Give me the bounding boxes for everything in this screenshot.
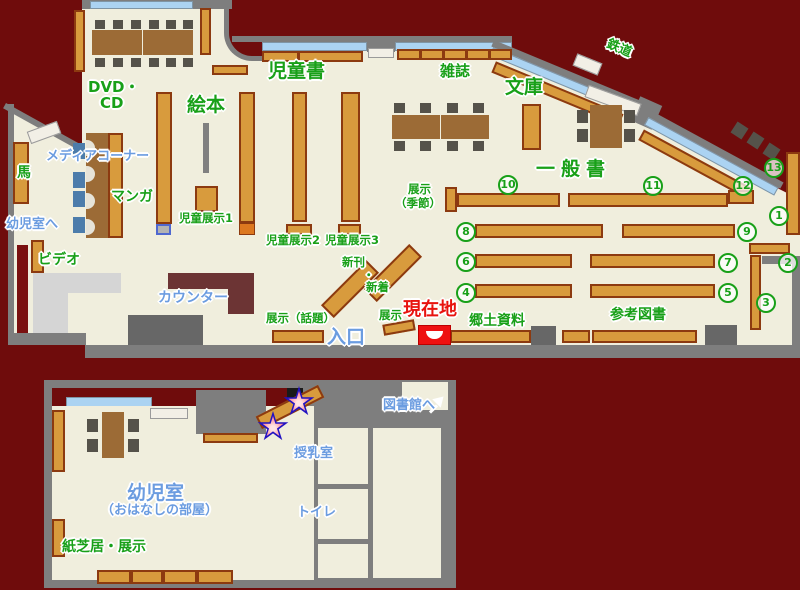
shelf-number-2: 2 bbox=[778, 253, 798, 273]
chair bbox=[394, 141, 405, 151]
label-display-seasonal2: （季節） bbox=[395, 197, 441, 209]
chair bbox=[747, 132, 765, 150]
label-railway: 鉄道 bbox=[604, 37, 633, 60]
chair bbox=[624, 110, 635, 123]
shelf bbox=[590, 284, 715, 298]
shelf-number-4: 4 bbox=[456, 283, 476, 303]
shelf bbox=[749, 243, 790, 254]
wall-block bbox=[705, 325, 737, 345]
shelf bbox=[786, 152, 800, 235]
label-picture-books: 絵本 bbox=[187, 96, 225, 116]
label-reference-books: 参考図書 bbox=[610, 308, 666, 323]
chair bbox=[128, 419, 139, 432]
chair bbox=[73, 217, 85, 233]
label-nursing-room: 授乳室 bbox=[294, 447, 333, 461]
display-topical-shelf bbox=[272, 330, 324, 343]
chair bbox=[113, 58, 123, 67]
shelf bbox=[74, 10, 85, 72]
label-new-arrivals2: 新着 bbox=[366, 281, 389, 293]
label-counter: カウンター bbox=[158, 291, 228, 306]
label-to-library: 図書館へ bbox=[383, 399, 435, 413]
chair bbox=[420, 141, 431, 151]
annex-wall-block bbox=[196, 390, 266, 434]
label-horse: 馬 bbox=[17, 166, 31, 181]
shelf bbox=[489, 49, 512, 60]
chair bbox=[473, 103, 484, 113]
reading-table bbox=[590, 105, 622, 148]
label-toilet: トイレ bbox=[297, 506, 336, 520]
shelf bbox=[443, 49, 467, 60]
wall-bottom bbox=[85, 345, 800, 358]
shelf bbox=[163, 570, 197, 584]
toilet-floor2 bbox=[318, 544, 368, 578]
window-topleft bbox=[90, 1, 193, 9]
label-child-display3: 児童展示3 bbox=[325, 234, 379, 246]
display-case bbox=[368, 48, 394, 58]
label-infant-room-sub: （おはなしの部屋） bbox=[101, 504, 218, 518]
shelf-number-8: 8 bbox=[456, 222, 476, 242]
wall-bottom-left bbox=[10, 333, 86, 345]
shelf bbox=[562, 330, 590, 343]
reading-table bbox=[92, 30, 142, 55]
shelf-number-9: 9 bbox=[737, 222, 757, 242]
work-counter bbox=[33, 293, 68, 333]
chair bbox=[128, 439, 139, 452]
chair bbox=[577, 110, 588, 123]
shelf bbox=[197, 570, 233, 584]
shelf bbox=[131, 570, 163, 584]
shelf-end-unit bbox=[239, 223, 255, 235]
chair bbox=[73, 191, 85, 207]
shelf bbox=[592, 330, 697, 343]
shelf bbox=[522, 104, 541, 150]
chair bbox=[87, 419, 98, 432]
label-new-arrivals1: 新刊 bbox=[342, 256, 365, 268]
chair bbox=[183, 20, 193, 29]
shelf bbox=[156, 92, 172, 224]
label-to-infant-room: 幼児室へ bbox=[6, 218, 58, 232]
shelf bbox=[475, 254, 572, 268]
chair bbox=[73, 172, 85, 188]
chair bbox=[731, 122, 749, 140]
shelf bbox=[341, 92, 360, 222]
reading-table bbox=[102, 412, 124, 458]
chair bbox=[149, 58, 159, 67]
wall-block bbox=[531, 326, 556, 345]
chair bbox=[149, 20, 159, 29]
label-kamishibai: 紙芝居・展示 bbox=[62, 540, 146, 555]
child-display1-table bbox=[195, 186, 218, 212]
shelf bbox=[203, 433, 258, 443]
chair bbox=[131, 20, 141, 29]
display-case bbox=[573, 53, 603, 75]
shelf bbox=[239, 92, 255, 223]
chair bbox=[577, 129, 588, 142]
chair bbox=[95, 58, 105, 67]
chair bbox=[447, 141, 458, 151]
shelf bbox=[622, 224, 735, 238]
chair bbox=[420, 103, 431, 113]
shelf-number-12: 12 bbox=[733, 176, 753, 196]
shelf-number-10: 10 bbox=[498, 175, 518, 195]
shelf bbox=[397, 49, 421, 60]
shelf-number-7: 7 bbox=[718, 253, 738, 273]
chair bbox=[131, 58, 141, 67]
display-case bbox=[150, 408, 188, 419]
current-location-marker bbox=[418, 325, 451, 345]
chair bbox=[113, 20, 123, 29]
shelf bbox=[590, 254, 715, 268]
shelf bbox=[450, 330, 531, 343]
shelf-number-5: 5 bbox=[718, 283, 738, 303]
label-display-small: 展示 bbox=[379, 309, 402, 321]
chair bbox=[166, 58, 176, 67]
shelf-number-13: 13 bbox=[764, 158, 784, 178]
shelf bbox=[292, 92, 307, 222]
label-paperbacks: 文庫 bbox=[505, 78, 543, 98]
shelf bbox=[475, 224, 603, 238]
chair bbox=[95, 20, 105, 29]
reading-table bbox=[143, 30, 193, 55]
label-video: ビデオ bbox=[38, 253, 80, 268]
picture-book-rack bbox=[203, 123, 209, 173]
shelf-number-11: 11 bbox=[643, 176, 663, 196]
seasonal-display-shelf bbox=[445, 187, 457, 212]
service-counter bbox=[228, 289, 254, 314]
shelf-number-3: 3 bbox=[756, 293, 776, 313]
shelf bbox=[97, 570, 131, 584]
shelf bbox=[457, 193, 560, 207]
shelf bbox=[420, 49, 444, 60]
window-children bbox=[262, 42, 367, 51]
label-general-books: 一般書 bbox=[536, 160, 611, 180]
shelf-number-6: 6 bbox=[456, 252, 476, 272]
label-child-display2: 児童展示2 bbox=[266, 234, 320, 246]
chair bbox=[624, 129, 635, 142]
work-counter bbox=[33, 273, 121, 293]
chair bbox=[394, 103, 405, 113]
label-manga: マンガ bbox=[111, 190, 153, 205]
shelf bbox=[212, 65, 248, 75]
label-local-materials: 郷土資料 bbox=[469, 314, 525, 329]
label-childrens-books: 児童書 bbox=[268, 62, 325, 82]
shelf-number-1: 1 bbox=[769, 206, 789, 226]
label-display-topical: 展示（話題） bbox=[266, 312, 335, 324]
shelf bbox=[52, 410, 65, 472]
current-location-icon bbox=[426, 331, 443, 339]
chair bbox=[87, 439, 98, 452]
annex-right-room bbox=[373, 428, 441, 578]
shelf bbox=[466, 49, 490, 60]
label-media-corner: メディアコーナー bbox=[46, 150, 149, 164]
label-current-location: 現在地 bbox=[403, 301, 457, 320]
service-counter bbox=[168, 273, 254, 289]
shelf-end-unit bbox=[156, 224, 171, 235]
reading-table bbox=[441, 115, 489, 139]
label-display-seasonal: 展示 bbox=[408, 183, 431, 195]
shelf bbox=[475, 284, 572, 298]
label-infant-room: 幼児室 bbox=[127, 484, 184, 504]
chair bbox=[183, 58, 193, 67]
label-entrance: 入口 bbox=[327, 328, 365, 348]
label-dvd-cd2: CD bbox=[100, 96, 123, 112]
chair bbox=[447, 103, 458, 113]
shelf bbox=[750, 255, 761, 330]
wall-block bbox=[128, 315, 203, 345]
chair bbox=[473, 141, 484, 151]
reading-table bbox=[392, 115, 440, 139]
void-left-strip bbox=[17, 245, 28, 345]
label-child-display1: 児童展示1 bbox=[179, 212, 233, 224]
label-magazines: 雑誌 bbox=[440, 64, 470, 80]
chair bbox=[166, 20, 176, 29]
shelf bbox=[200, 8, 211, 55]
